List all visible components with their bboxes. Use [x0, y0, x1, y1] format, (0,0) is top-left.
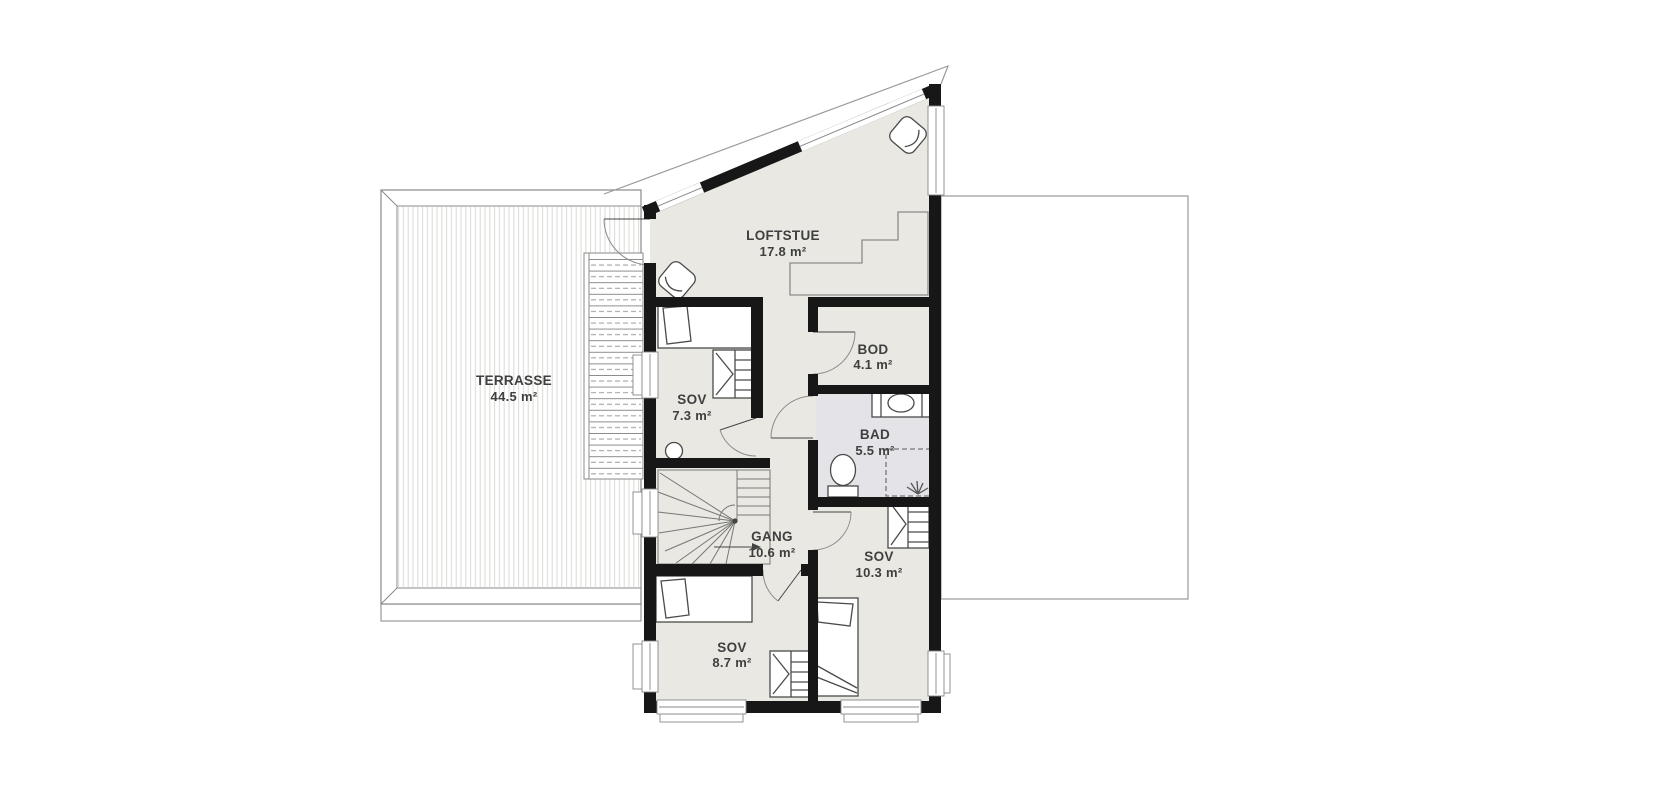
room-area: 17.8 m² — [760, 244, 807, 259]
window — [657, 700, 746, 722]
room-name: LOFTSTUE — [746, 228, 820, 243]
roof-outline-right — [941, 196, 1188, 599]
wardrobe-icon — [888, 501, 929, 548]
room-area: 8.7 m² — [712, 655, 752, 670]
label-sov-8: SOV 8.7 m² — [712, 640, 752, 670]
floor-plan-svg: LOFTSTUE 17.8 m² TERRASSE 44.5 m² SOV 7.… — [0, 0, 1670, 800]
stool-icon — [666, 443, 683, 460]
window — [841, 700, 921, 722]
room-name: GANG — [751, 529, 793, 544]
label-bod: BOD 4.1 m² — [853, 342, 893, 372]
wardrobe-icon — [713, 350, 756, 398]
bed-icon — [656, 576, 752, 622]
room-name: SOV — [717, 640, 746, 655]
room-area: 10.6 m² — [749, 545, 796, 560]
room-area: 44.5 m² — [491, 389, 538, 404]
room-area: 5.5 m² — [855, 443, 895, 458]
window — [633, 489, 658, 537]
window — [633, 352, 658, 398]
room-name: BAD — [860, 427, 890, 442]
wardrobe-icon — [770, 651, 812, 697]
toilet-icon — [828, 455, 858, 498]
bed-icon — [658, 303, 752, 348]
room-name: SOV — [677, 392, 706, 407]
room-area: 4.1 m² — [853, 357, 893, 372]
room-name: BOD — [858, 342, 889, 357]
label-gang: GANG 10.6 m² — [749, 529, 796, 560]
label-bad: BAD 5.5 m² — [855, 427, 895, 458]
room-name: TERRASSE — [476, 373, 552, 388]
window — [633, 641, 658, 692]
window — [928, 651, 950, 696]
room-area: 10.3 m² — [856, 565, 903, 580]
roof-outline-below-terrace — [381, 604, 641, 621]
room-area: 7.3 m² — [672, 408, 712, 423]
bed-icon — [813, 598, 858, 696]
floor-plan-page: LOFTSTUE 17.8 m² TERRASSE 44.5 m² SOV 7.… — [0, 0, 1670, 800]
window — [928, 106, 944, 195]
room-name: SOV — [864, 549, 893, 564]
label-sov-7: SOV 7.3 m² — [672, 392, 712, 423]
